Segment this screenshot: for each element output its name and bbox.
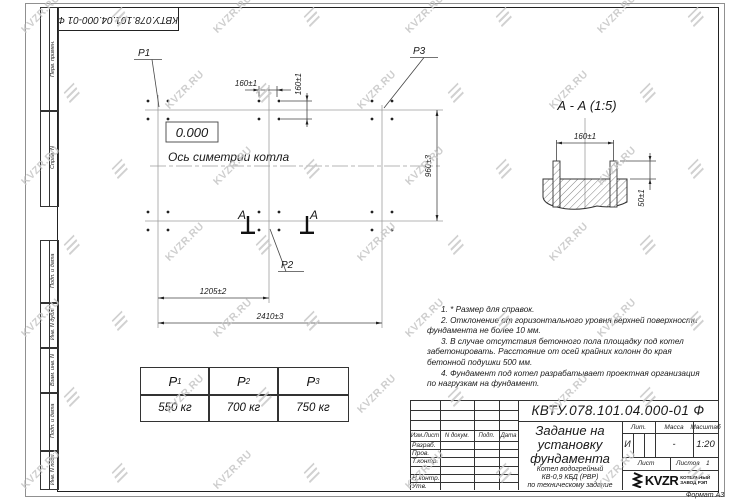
company-name-line2: ЗАВОД РЭП bbox=[680, 480, 710, 485]
scale-value: 1:20 bbox=[693, 436, 718, 452]
mass-label: Масса bbox=[655, 422, 693, 432]
lit-label: Лит. bbox=[622, 422, 655, 432]
product-name: Котел водогрейный КВ-0,9 КБД (РВР) по те… bbox=[519, 466, 621, 489]
sheets-label: Листов bbox=[676, 460, 700, 467]
product-line-3: по техническому задание bbox=[519, 482, 621, 490]
col-izm-list: Изм.Лист bbox=[410, 432, 440, 440]
scale-label: Масштаб bbox=[693, 422, 718, 432]
grid-line bbox=[474, 400, 475, 490]
mass-value: - bbox=[655, 436, 693, 452]
drawing-sheet: КВТУ.078.101.04.000-01 Ф Перв. примен.Сп… bbox=[0, 0, 750, 500]
product-line-1: Котел водогрейный bbox=[519, 466, 621, 474]
sig-tkontr: Т.контр. bbox=[412, 458, 438, 465]
grid-line bbox=[410, 420, 518, 421]
sheet-label: Лист bbox=[622, 458, 670, 469]
company-name: КОТЕЛЬНЫЙ ЗАВОД РЭП bbox=[680, 475, 710, 485]
format-label: Формат А3 bbox=[670, 491, 740, 500]
sheets-value: 1 bbox=[706, 460, 710, 467]
grid-line bbox=[410, 430, 518, 431]
company-logo-text: KVZR bbox=[645, 473, 678, 488]
grid-line bbox=[622, 433, 718, 434]
grid-line bbox=[670, 457, 671, 470]
grid-line bbox=[644, 433, 645, 457]
grid-line bbox=[410, 400, 411, 490]
sig-prov: Пров. bbox=[412, 450, 429, 457]
lit-value: И bbox=[622, 436, 633, 452]
coil-logo-icon bbox=[632, 472, 643, 488]
col-podp: Подп. bbox=[474, 432, 499, 440]
grid-line bbox=[410, 410, 518, 411]
grid-line bbox=[410, 466, 518, 467]
title-block-title: Задание на установку фундамента bbox=[519, 423, 621, 466]
sig-utv: Утв. bbox=[412, 483, 427, 490]
col-data: Дата bbox=[499, 432, 518, 440]
product-line-2: КВ-0,9 КБД (РВР) bbox=[519, 474, 621, 482]
title-block-doc-number: КВТУ.078.101.04.000-01 Ф bbox=[520, 401, 716, 420]
col-n-dokum: N докум. bbox=[440, 432, 474, 440]
sig-nkontr: Н.контр. bbox=[412, 475, 440, 482]
company-stamp: KVZR КОТЕЛЬНЫЙ ЗАВОД РЭП bbox=[624, 471, 718, 489]
grid-line bbox=[633, 433, 634, 457]
grid-line bbox=[718, 400, 719, 490]
sig-razrab: Разраб. bbox=[412, 442, 436, 449]
grid-line bbox=[440, 400, 441, 490]
title-block: КВТУ.078.101.04.000-01 Ф Задание на уста… bbox=[0, 0, 750, 500]
grid-line bbox=[499, 400, 500, 490]
